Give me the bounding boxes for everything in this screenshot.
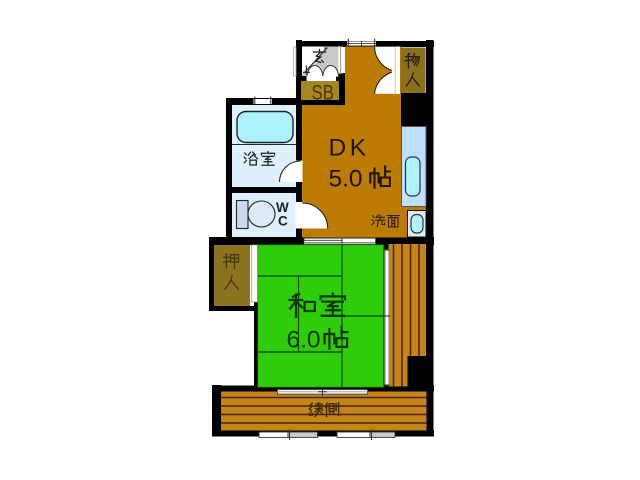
svg-text:5.0: 5.0: [329, 166, 363, 193]
svg-text:6.0: 6.0: [287, 327, 321, 354]
svg-text:DK: DK: [329, 135, 370, 162]
svg-text:C: C: [278, 214, 288, 229]
svg-text:SB: SB: [312, 82, 334, 105]
